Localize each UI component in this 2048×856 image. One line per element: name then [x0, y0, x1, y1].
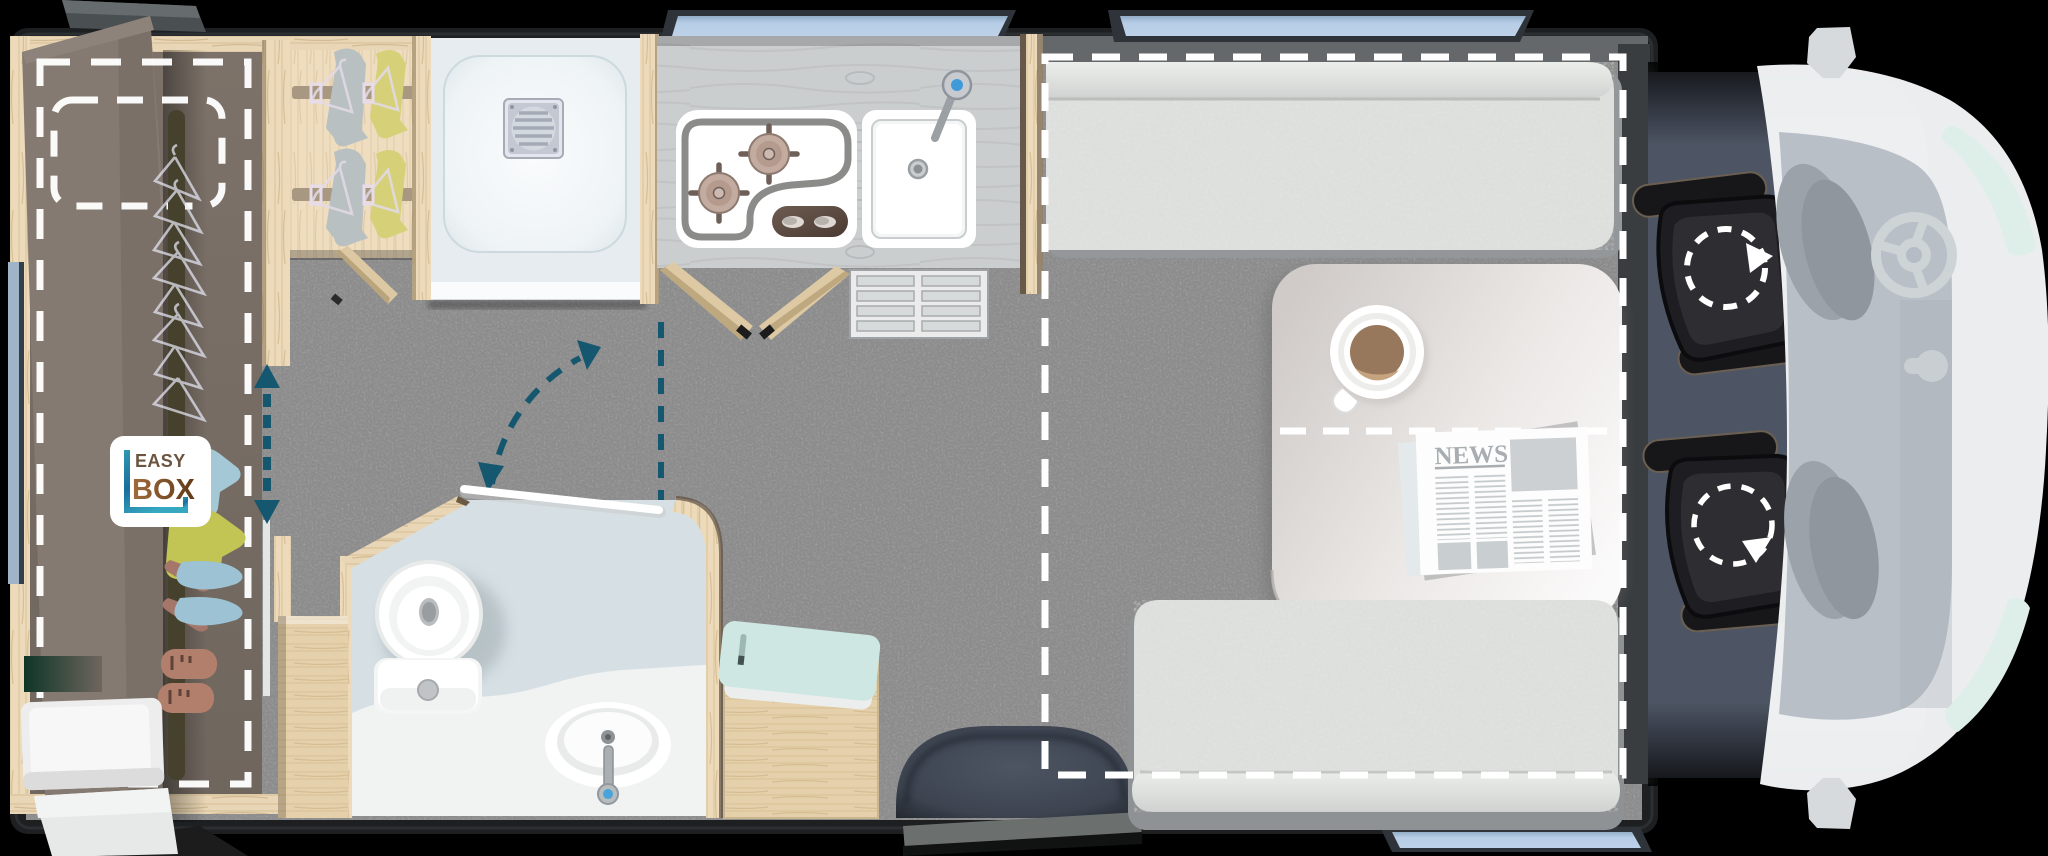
svg-text:EASY: EASY — [135, 451, 186, 471]
svg-text:BOX: BOX — [132, 474, 196, 506]
